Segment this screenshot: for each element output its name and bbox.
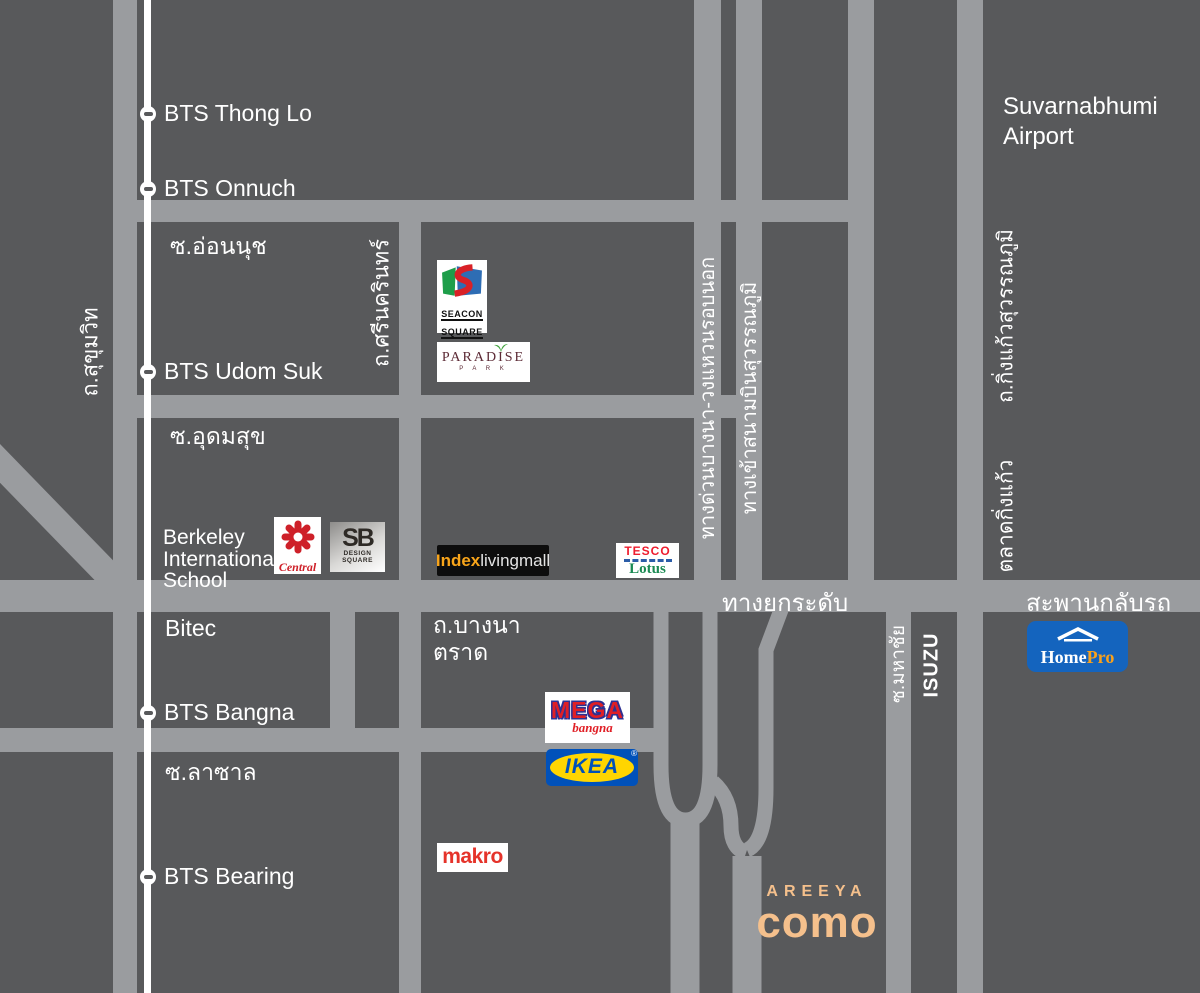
seacon-word-2: SQUARE (441, 327, 483, 339)
bts-station-label-udom-suk: BTS Udom Suk (164, 358, 323, 385)
king-kaeo-road-label: ถ.กิ่งแก้วสุวรรณภูมิ (990, 229, 1023, 403)
suvarnabhumi-line2: Airport (1003, 122, 1158, 152)
ikea-registered-mark: ® (631, 749, 637, 758)
road-king-kaeo (957, 0, 983, 993)
paradise-leaf-icon (493, 343, 509, 353)
bts-station-dot-bearing (140, 869, 156, 885)
king-kaeo-market-label: ตลาดกิ่งแก้ว (990, 460, 1023, 573)
ramp-right-road (747, 602, 784, 850)
sb-sub-design: DESIGN (330, 550, 385, 557)
ikea-word: IKEA (546, 755, 638, 779)
diagonal-road (0, 448, 125, 592)
bts-station-dot-onnuch (140, 181, 156, 197)
soi-onnuch-label: ซ.อ่อนนุช (170, 229, 267, 265)
seacon-square-icon (441, 263, 483, 299)
tesco-lotus-logo: TESCO Lotus (616, 543, 679, 578)
road-udomsuk (113, 395, 762, 418)
berkeley-line3: School (163, 570, 279, 592)
bangna-trat-line2: ตราด (433, 639, 521, 666)
homepro-logo: HomePro (1027, 621, 1128, 672)
mega-bangna-script: bangna (545, 722, 630, 734)
lotus-word: Lotus (616, 562, 679, 577)
bts-station-dot-thong-lo (140, 106, 156, 122)
srinakarin-road-label: ถ.ศรีนครินทร์ (364, 239, 399, 367)
index-livingmall-logo: Indexlivingmall (437, 545, 549, 576)
uturn-loop-road (661, 605, 710, 820)
paradise-sub: P A R K (437, 365, 530, 373)
bts-station-label-onnuch: BTS Onnuch (164, 175, 296, 202)
road-onnuch (130, 200, 874, 222)
berkeley-school-label: Berkeley International School (163, 527, 279, 592)
soi-lasalle-label: ซ.ลาซาล (165, 755, 257, 791)
central-logo: Central (274, 517, 321, 574)
bangna-ringroad-expressway-label: ทางด่วนบางนา-วงแหวนรอบนอก (691, 257, 723, 540)
paradise-name: PARADISE (437, 350, 530, 365)
isuzu-label: ISUZU (921, 633, 944, 698)
areeya-como-wordmark: como (755, 903, 879, 943)
sb-mark: SB (330, 526, 385, 550)
bts-station-label-bangna: BTS Bangna (164, 699, 294, 726)
uturn-bridge-label: สะพานกลับรถ (1026, 583, 1171, 622)
bangna-trat-road-label: ถ.บางนา ตราด (433, 612, 521, 666)
index-bold: Index (436, 551, 480, 571)
sukhumvit-road-label: ถ.สุขุมวิท (73, 307, 108, 396)
bts-station-dot-udom-suk (140, 364, 156, 380)
bangna-trat-line1: ถ.บางนา (433, 612, 521, 639)
homepro-home: Home (1041, 647, 1087, 667)
sb-design-square-logo: SB DESIGN SQUARE (330, 522, 385, 572)
bts-station-label-thong-lo: BTS Thong Lo (164, 100, 312, 127)
index-rest: livingmall (480, 551, 550, 571)
homepro-pro: Pro (1087, 647, 1115, 667)
suvarnabhumi-line1: Suvarnabhumi (1003, 92, 1158, 122)
mega-bangna-logo: MEGA bangna (545, 692, 630, 743)
soi-udomsuk-label: ซ.อุดมสุข (170, 419, 266, 455)
paradise-park-logo: PARADISE P A R K (437, 342, 530, 382)
makro-logo: makro (437, 843, 508, 872)
location-map: BTS Thong Lo BTS Onnuch BTS Udom Suk BTS… (0, 0, 1200, 993)
airport-access-road-label: ทางเข้าสนามบินสุวรรณภูมิ (733, 282, 765, 514)
bts-skytrain-line (144, 0, 151, 993)
soi-mahachai-label: ซ.มหาชัย (883, 625, 913, 703)
ramp-left-road (713, 782, 746, 853)
sb-sub-square: SQUARE (330, 557, 385, 564)
homepro-word: HomePro (1027, 648, 1128, 666)
mega-word: MEGA (545, 698, 630, 722)
bts-station-label-bearing: BTS Bearing (164, 863, 294, 890)
central-flower-icon (278, 520, 318, 556)
suvarnabhumi-airport-label: Suvarnabhumi Airport (1003, 92, 1158, 152)
seacon-square-logo: SEACON SQUARE (437, 260, 487, 333)
ikea-logo: IKEA ® (546, 749, 638, 786)
elevated-road-label: ทางยกระดับ (722, 583, 848, 622)
tesco-word: TESCO (616, 545, 679, 558)
bts-station-dot-bangna (140, 705, 156, 721)
bitec-label: Bitec (165, 615, 216, 642)
makro-word: makro (437, 843, 508, 870)
central-wordmark: Central (274, 561, 321, 573)
berkeley-line2: International (163, 549, 279, 571)
seacon-word-1: SEACON (441, 309, 483, 321)
road-vertical-unnamed (848, 0, 874, 612)
road-sukhumvit (113, 0, 137, 993)
berkeley-line1: Berkeley (163, 527, 279, 549)
homepro-roof-icon (1054, 626, 1102, 643)
